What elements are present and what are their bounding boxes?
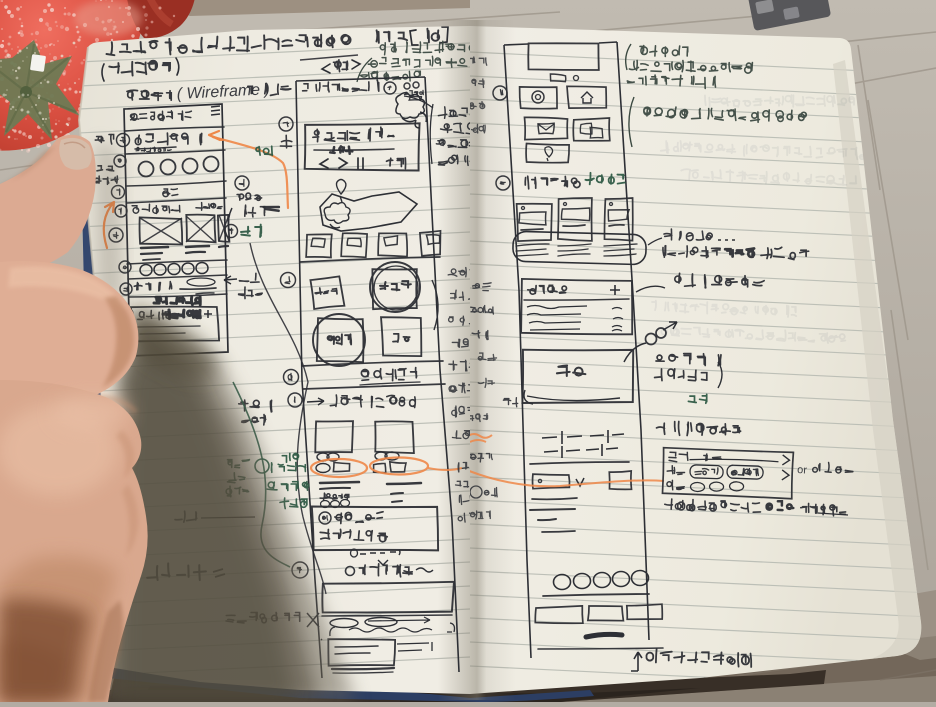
svg-text:or: or: [797, 464, 808, 477]
